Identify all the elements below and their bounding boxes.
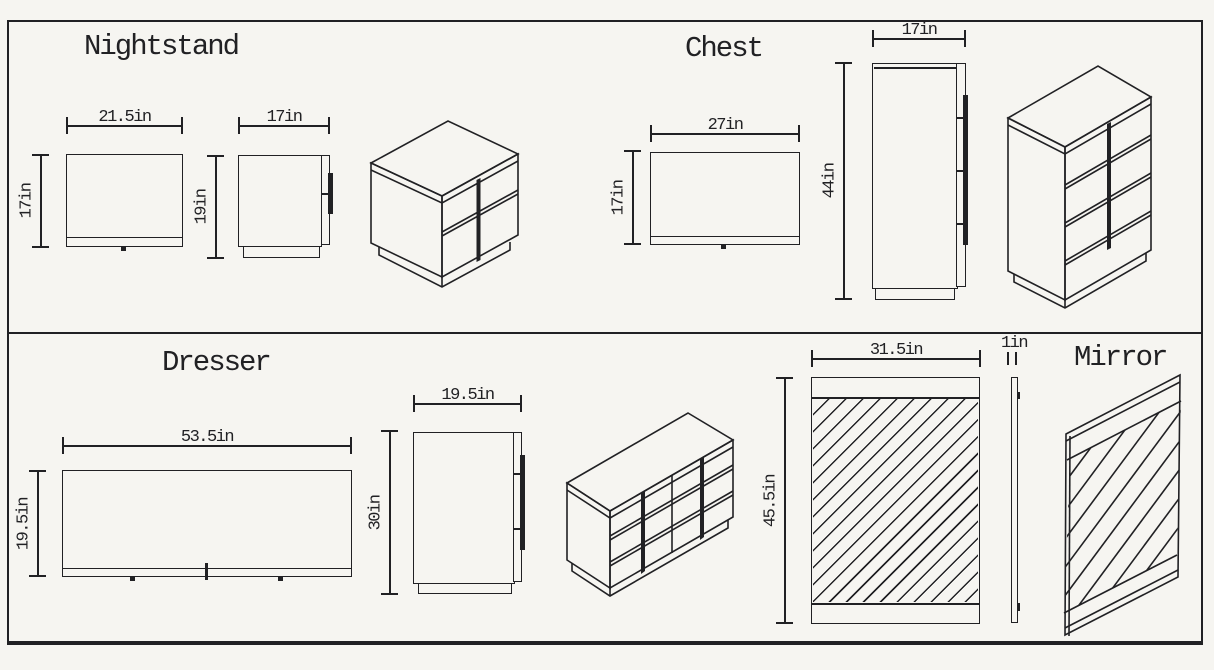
dresser-top-center-mark [205,563,208,580]
dresser-title: Dresser [162,346,270,379]
dresser-top-width-dim: 53.5in [62,437,352,454]
nightstand-title: Nightstand [84,30,238,63]
nightstand-side-handle [328,173,333,214]
chest-side-width-label: 17in [902,21,937,40]
mirror-glass-hatch [813,399,978,602]
chest-side-handle [963,95,968,245]
nightstand-front-view [66,154,183,238]
nightstand-side-width-dim: 17in [238,117,330,134]
chest-side-top-panel-line [874,67,956,69]
mirror-depth-label: 1in [994,334,1034,353]
mirror-depth-tick-right [1015,352,1017,365]
chest-side-base [875,288,955,300]
chest-top-width-label: 27in [708,116,743,135]
dresser-side-width-label: 19.5in [441,386,493,405]
chest-iso-view [1000,58,1160,312]
dresser-top-foot-left [130,576,135,581]
dresser-side-height-dim: 30in [381,430,398,595]
chest-side-view [872,63,958,289]
nightstand-front-width-label: 21.5in [98,108,150,127]
dresser-top-height-label: 19.5in [14,497,33,549]
chest-side-width-dim: 17in [872,30,966,47]
nightstand-front-width-dim: 21.5in [66,117,183,134]
mirror-height-dim: 45.5in [776,377,793,624]
dresser-side-height-label: 30in [366,495,385,530]
dresser-side-view [413,432,515,584]
nightstand-side-base [243,246,320,258]
mirror-height-label: 45.5in [761,474,780,526]
dresser-top-foot-right [278,576,283,581]
mirror-width-dim: 31.5in [811,350,981,367]
mirror-width-label: 31.5in [870,341,922,360]
nightstand-front-height-dim: 17in [32,154,49,248]
dresser-top-height-dim: 19.5in [29,470,46,577]
dresser-side-base [418,583,512,594]
nightstand-front-foot [121,246,126,251]
mirror-frame-bottom-line [811,603,980,605]
dresser-top-width-label: 53.5in [181,428,233,447]
chest-side-height-dim: 44in [835,62,852,300]
chest-title: Chest [685,32,762,65]
nightstand-side-height-label: 19in [192,190,211,225]
chest-side-height-label: 44in [820,164,839,199]
dresser-top-view [62,470,352,569]
mirror-side-hook-top [1017,392,1020,399]
chest-top-height-dim: 17in [624,150,641,245]
chest-top-foot [721,244,726,249]
nightstand-side-view [238,155,322,247]
mirror-iso-view [1055,368,1190,643]
dresser-side-width-dim: 19.5in [413,395,522,412]
nightstand-iso-view [360,112,530,292]
nightstand-side-height-dim: 19in [207,155,224,259]
mirror-depth-tick-left [1007,352,1009,365]
chest-top-view [650,152,800,237]
nightstand-front-height-label: 17in [17,184,36,219]
nightstand-side-width-label: 17in [267,108,302,127]
dresser-iso-view [558,360,743,605]
chest-top-height-label: 17in [609,180,628,215]
dresser-side-handle [520,455,525,550]
chest-top-width-dim: 27in [650,125,800,142]
mirror-side-view [1011,377,1018,623]
furniture-dimension-sheet: Nightstand 21.5in 17in 17in 19in Chest [0,0,1214,670]
mirror-side-hook-bottom [1017,603,1020,611]
